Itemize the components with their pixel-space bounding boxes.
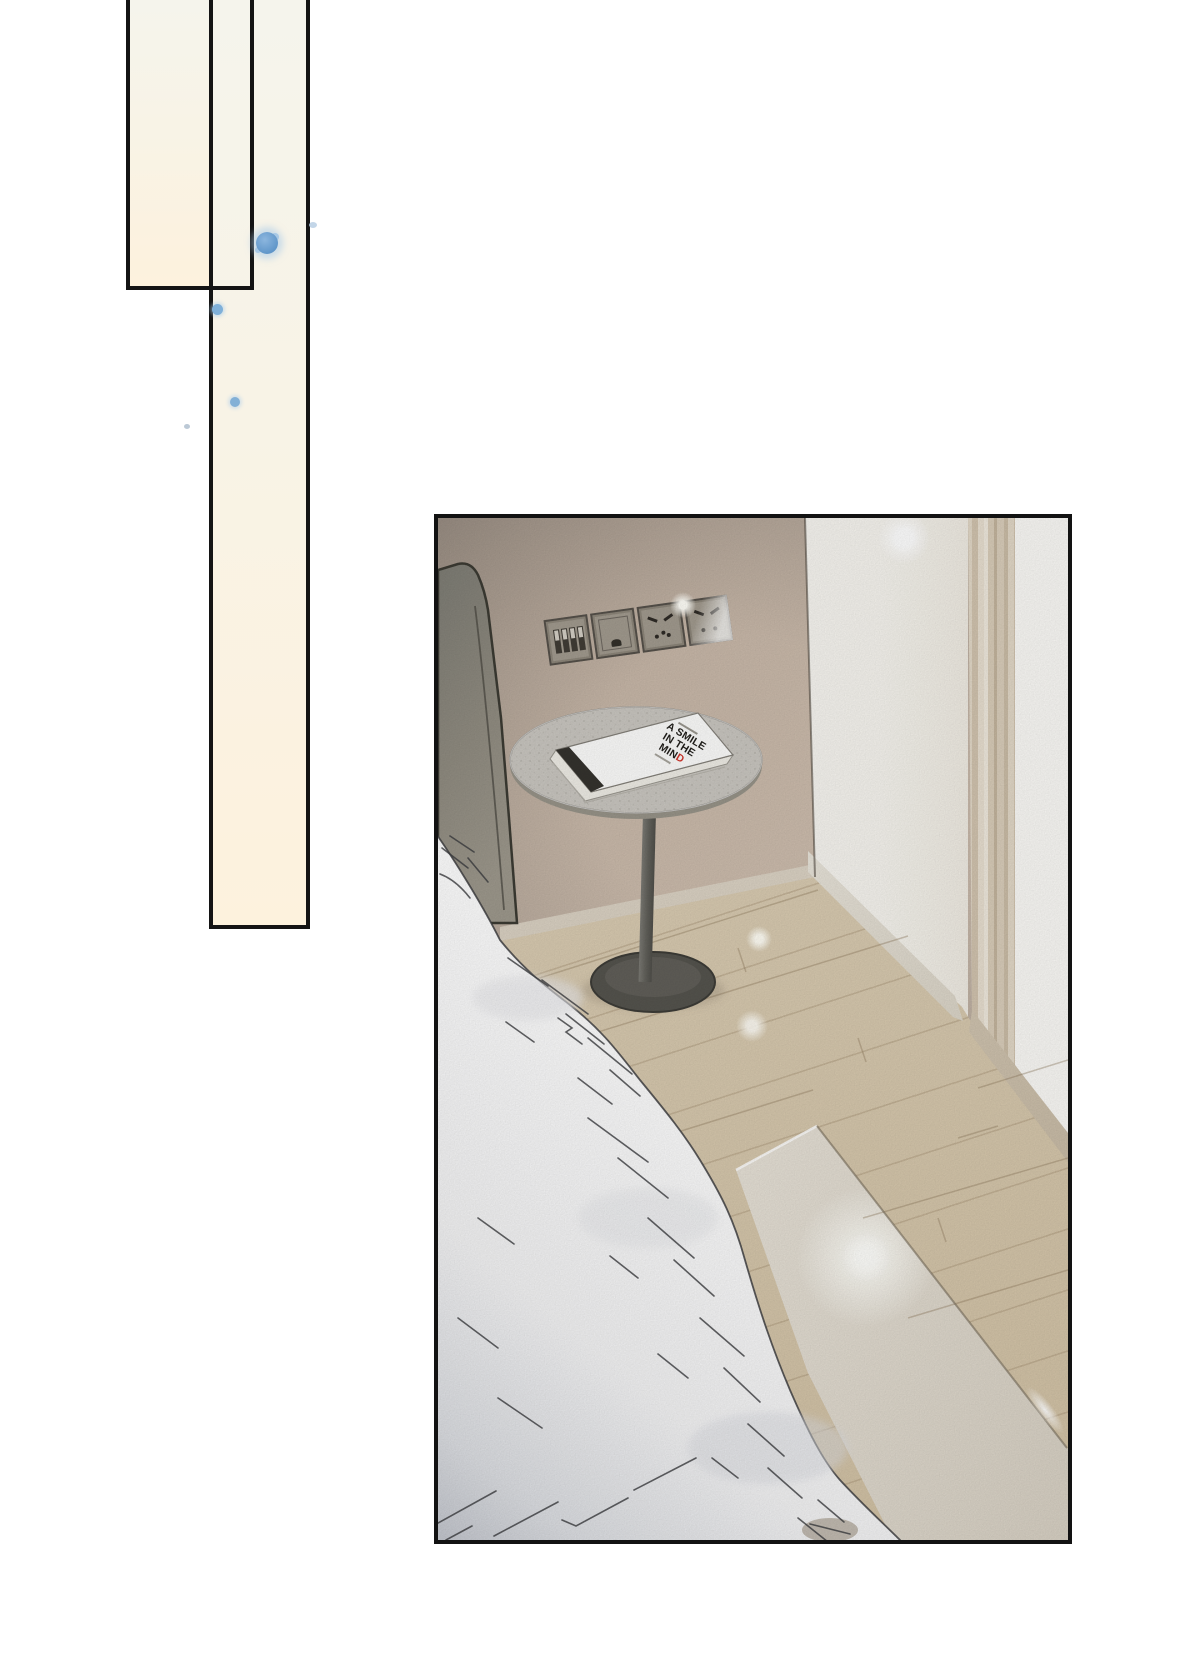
scene-panel: A SMILE IN THE MIND (434, 514, 1072, 1544)
stripe-seam-edge (817, 1126, 1067, 1448)
ink-splash-speck (184, 424, 190, 429)
ink-splash-dot-medium (212, 304, 223, 315)
decor-rect-tall-border (209, 0, 310, 929)
bedroom-scene: A SMILE IN THE MIND (438, 518, 1068, 1540)
ink-splash-dot-large (256, 232, 278, 254)
ink-splash-dot-small (230, 397, 240, 407)
comic-page: A SMILE IN THE MIND (0, 0, 1200, 1656)
wall-corner-line (805, 518, 815, 877)
scene-drawing: A SMILE IN THE MIND (438, 518, 1068, 1540)
stripe-highlight-edge (736, 1126, 817, 1170)
ink-splash-speck (309, 222, 317, 228)
bed (438, 828, 902, 1540)
